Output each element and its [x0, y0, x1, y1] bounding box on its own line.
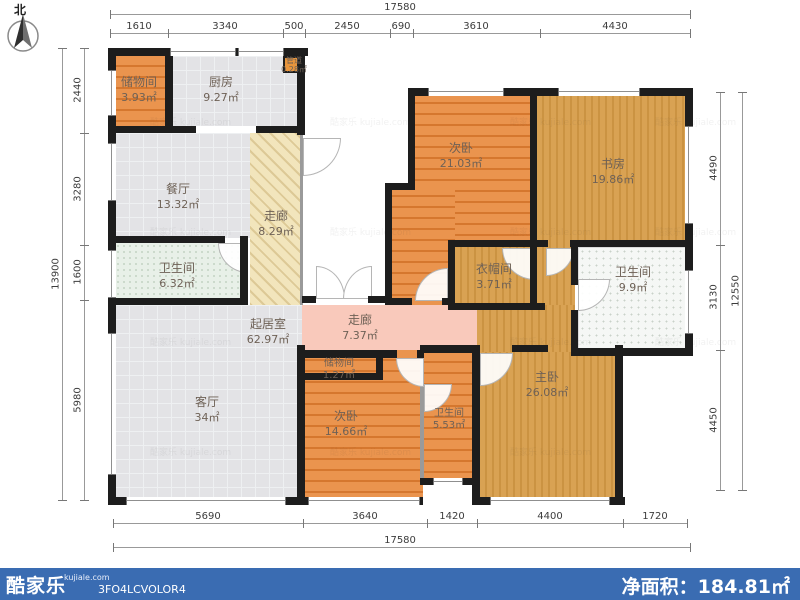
dim-left-total: 13900: [51, 258, 62, 290]
dim-tick: [716, 92, 725, 93]
dim-line-bottom-seg: [113, 523, 687, 524]
dim-line-right-seg: [720, 92, 721, 490]
room-label-bed-2103: 次卧21.03㎡: [440, 141, 483, 171]
watermark: 酷家乐 kujiale.com: [150, 445, 231, 458]
window: [108, 333, 116, 475]
wall: [108, 236, 225, 243]
wall: [472, 345, 480, 505]
dim-tick: [477, 519, 478, 528]
dim-tick: [427, 519, 428, 528]
dim-tick: [690, 10, 691, 19]
void-gap: [423, 485, 473, 497]
window: [428, 88, 504, 96]
dim-top-seg-2: 500: [284, 21, 303, 32]
dim-line-right-total: [742, 92, 743, 490]
footer-bar: 酷家乐 kujiale.com 3FO4LCVOLOR4 净面积：184.81㎡: [0, 568, 800, 600]
dim-right-seg-0: 4490: [709, 155, 720, 180]
watermark: 酷家乐 kujiale.com: [510, 445, 591, 458]
dim-tick: [690, 543, 691, 552]
dim-bottom-total: 17580: [384, 535, 416, 546]
window: [108, 70, 116, 116]
dim-bottom-seg-1: 3640: [352, 511, 377, 522]
dim-tick: [110, 29, 111, 38]
room-label-pipe-duct: 管道0.28㎡: [281, 56, 307, 74]
watermark: 酷家乐 kujiale.com: [330, 445, 411, 458]
room-label-corridor-829: 走廊8.29㎡: [258, 209, 294, 239]
watermark: 酷家乐 kujiale.com: [655, 115, 736, 128]
dim-tick: [80, 500, 89, 501]
dim-tick: [623, 519, 624, 528]
wall: [530, 93, 537, 245]
dim-tick: [303, 519, 304, 528]
dim-top-seg-0: 1610: [126, 21, 151, 32]
floorplan-canvas: 北: [0, 0, 800, 600]
dim-tick: [113, 543, 114, 552]
window: [490, 497, 610, 505]
wall: [571, 348, 693, 356]
wall: [368, 296, 390, 303]
dim-top-seg-3: 2450: [334, 21, 359, 32]
dim-left-seg-0: 2440: [73, 77, 84, 102]
wall: [571, 245, 578, 285]
wall: [376, 350, 383, 380]
wall: [383, 350, 397, 358]
wall: [385, 188, 392, 305]
dim-tick: [738, 490, 747, 491]
net-area-label: 净面积：: [622, 576, 698, 598]
dim-tick: [168, 29, 169, 38]
room-label-corridor-737: 走廊7.37㎡: [342, 313, 378, 343]
wall: [165, 48, 173, 132]
wall: [530, 245, 537, 310]
dim-top-seg-4: 690: [391, 21, 410, 32]
brand-logo: 酷家乐: [6, 571, 66, 598]
door-arc-entry-right: [343, 266, 372, 299]
wall: [302, 296, 316, 303]
dim-right-seg-1: 3130: [709, 284, 720, 309]
door-arc-service: [303, 138, 341, 176]
dim-left-seg-2: 1600: [73, 259, 84, 284]
watermark: 酷家乐 kujiale.com: [655, 335, 736, 348]
watermark: 酷家乐 kujiale.com: [330, 225, 411, 238]
dim-tick: [58, 500, 67, 501]
dim-top-seg-6: 4430: [602, 21, 627, 32]
dim-right-seg-2: 4450: [709, 407, 720, 432]
room-label-master: 主卧26.08㎡: [526, 370, 569, 400]
dim-top-seg-1: 3340: [212, 21, 237, 32]
room-label-bath-632: 卫生间6.32㎡: [159, 261, 195, 291]
room-label-bed-1466: 次卧14.66㎡: [325, 409, 368, 439]
dim-bottom-seg-0: 5690: [195, 511, 220, 522]
dim-left-seg-1: 3280: [73, 176, 84, 201]
dim-tick: [80, 245, 89, 246]
dim-bottom-seg-3: 4400: [537, 511, 562, 522]
dim-tick: [80, 48, 89, 49]
floorplan-code: 3FO4LCVOLOR4: [98, 583, 186, 596]
dim-top-total: 17580: [384, 2, 416, 13]
dim-tick: [716, 350, 725, 351]
dim-tick: [540, 29, 541, 38]
room-label-study: 书房19.86㎡: [592, 157, 635, 187]
room-label-keting: 客厅34㎡: [195, 395, 220, 425]
window: [685, 126, 693, 224]
room-label-cloakroom: 衣帽间3.71㎡: [476, 262, 512, 292]
dim-bottom-seg-2: 1420: [439, 511, 464, 522]
window: [238, 48, 284, 56]
watermark: 酷家乐 kujiale.com: [510, 225, 591, 238]
dim-line-top-seg: [110, 33, 690, 34]
watermark: 酷家乐 kujiale.com: [510, 115, 591, 128]
dim-bottom-seg-4: 1720: [642, 511, 667, 522]
window: [108, 250, 116, 298]
wall: [571, 310, 578, 350]
dim-top-seg-5: 3610: [463, 21, 488, 32]
wall: [570, 240, 693, 247]
dim-line-bottom-total: [113, 547, 690, 548]
window: [170, 48, 236, 56]
wall: [420, 345, 479, 353]
room-label-dining: 餐厅13.32㎡: [157, 182, 200, 212]
door-arc-entry-left: [316, 266, 345, 299]
wall: [408, 88, 415, 188]
window: [108, 143, 116, 201]
wall-opening: [196, 126, 256, 133]
dim-tick: [690, 29, 691, 38]
dim-tick: [716, 490, 725, 491]
compass-north-label: 北: [14, 1, 26, 18]
dim-tick: [305, 29, 306, 38]
dim-right-total: 12550: [731, 275, 742, 307]
wall: [448, 240, 455, 310]
dim-tick: [687, 519, 688, 528]
dim-tick: [738, 92, 747, 93]
net-area-value: 184.81㎡: [698, 576, 790, 598]
wall: [512, 345, 548, 352]
window: [433, 478, 463, 485]
window: [558, 88, 640, 96]
watermark: 酷家乐 kujiale.com: [150, 335, 231, 348]
room-label-storage-2: 储物间1.27㎡: [323, 358, 355, 382]
wall: [297, 345, 305, 505]
room-label-kitchen: 厨房9.27㎡: [203, 75, 239, 105]
dim-line-left-total: [62, 48, 63, 500]
wall: [300, 350, 383, 358]
dim-tick: [110, 10, 111, 19]
room-label-bath-99: 卫生间9.9㎡: [615, 265, 651, 295]
dim-tick: [716, 245, 725, 246]
watermark: 酷家乐 kujiale.com: [655, 225, 736, 238]
dim-tick: [80, 300, 89, 301]
dim-left-seg-3: 5980: [73, 387, 84, 412]
dim-line-left-seg: [84, 48, 85, 500]
window: [308, 497, 420, 505]
window: [126, 497, 286, 505]
room-label-bath-553: 卫生间5.53㎡: [433, 408, 465, 432]
dim-line-top-total: [110, 14, 690, 15]
dim-tick: [80, 133, 89, 134]
dim-tick: [113, 519, 114, 528]
watermark: 酷家乐 kujiale.com: [330, 115, 411, 128]
dim-tick: [58, 48, 67, 49]
wall: [240, 236, 248, 305]
window: [685, 270, 693, 334]
brand-domain: kujiale.com: [64, 573, 110, 582]
wall: [615, 345, 623, 505]
room-label-storage-1: 储物间3.93㎡: [121, 75, 157, 105]
wall: [108, 298, 248, 305]
room-label-living: 起居室62.97㎡: [247, 317, 290, 347]
net-area: 净面积：184.81㎡: [622, 572, 790, 599]
dim-tick: [413, 29, 414, 38]
